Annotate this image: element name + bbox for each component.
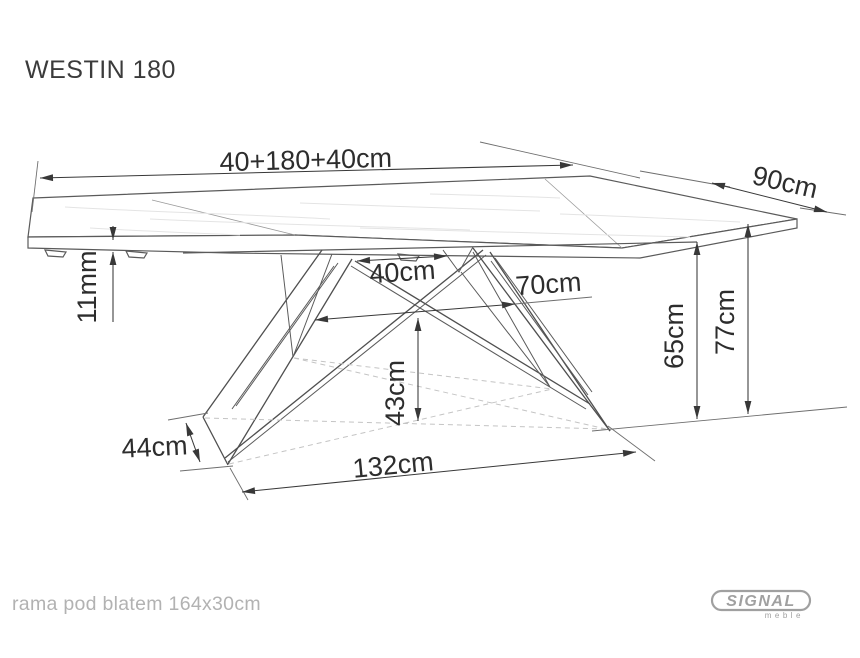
tabletop [28, 176, 797, 261]
cross-brace-right-to-left [225, 250, 483, 458]
front-left-blade-outer-edge [203, 250, 322, 417]
extension-line [608, 426, 655, 461]
cross-brace-right-to-left-inner [228, 255, 486, 462]
dimension-line [186, 423, 200, 462]
table-dimension-drawing: 40+180+40cm 90cm 11mm 40cm 70cm 43cm [0, 0, 860, 658]
dim-underframe-height: 65cm [659, 242, 697, 419]
logo-brand-text: SIGNAL [726, 593, 795, 610]
dim-leg-mid-span: 70cm [315, 267, 592, 320]
cross-height-label: 43cm [380, 360, 410, 426]
dimension-line [242, 452, 636, 492]
dim-leg-mount-gap: 40cm [357, 255, 447, 290]
floor-extension-line [592, 407, 847, 431]
depth-label: 90cm [749, 160, 820, 204]
brand-logo: SIGNAL meble [712, 591, 810, 620]
leg-mid-span-label: 70cm [514, 267, 582, 302]
leg-mount-gap-label: 40cm [368, 255, 436, 290]
extension-line [230, 468, 248, 500]
dim-feet-span: 132cm [230, 426, 655, 500]
frame-note: rama pod blatem 164x30cm [12, 593, 261, 615]
extension-line [480, 142, 640, 178]
top-thickness-label: 11mm [72, 250, 102, 323]
diagram-page: 40+180+40cm 90cm 11mm 40cm 70cm 43cm [0, 0, 860, 658]
extension-line [180, 466, 233, 471]
logo-sub-text: meble [765, 611, 804, 620]
underframe-height-label: 65cm [659, 303, 689, 369]
left-foot-bar [203, 417, 228, 465]
page-title: WESTIN 180 [25, 56, 176, 84]
dimension-line [315, 304, 515, 320]
extension-line [168, 413, 208, 420]
front-left-blade-inner-edge [228, 259, 352, 464]
total-length-label: 40+180+40cm [219, 143, 392, 178]
total-height-label: 77cm [710, 289, 740, 355]
dim-total-height: 77cm [710, 224, 748, 414]
feet-span-label: 132cm [351, 446, 435, 484]
foot-length-label: 44cm [121, 430, 189, 463]
